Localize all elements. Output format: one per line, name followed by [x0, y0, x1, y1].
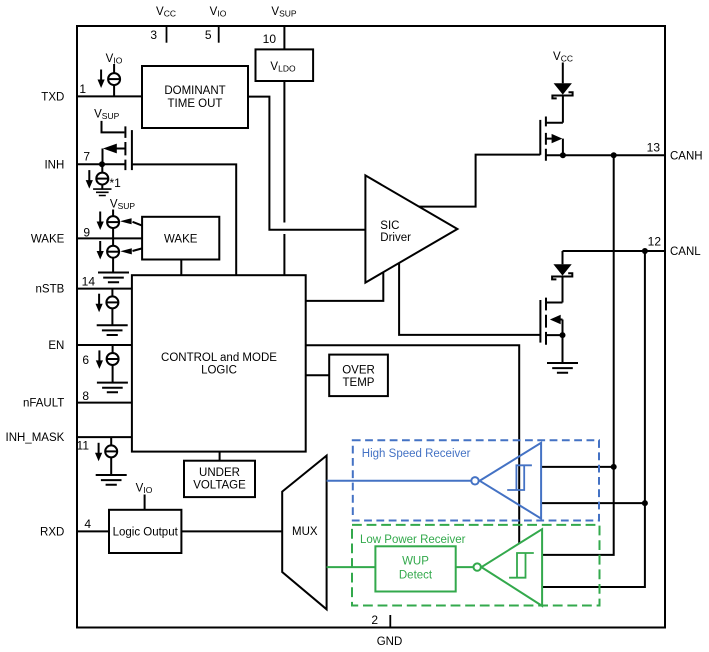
svg-text:EN: EN: [48, 340, 64, 352]
svg-text:VLDO: VLDO: [270, 61, 296, 74]
svg-text:4: 4: [84, 517, 91, 531]
svg-text:MUX: MUX: [292, 526, 318, 538]
svg-text:12: 12: [648, 235, 662, 249]
svg-text:INH: INH: [44, 159, 64, 171]
svg-text:VCC: VCC: [156, 6, 176, 19]
svg-text:8: 8: [82, 389, 89, 403]
svg-text:WAKE: WAKE: [31, 233, 65, 245]
svg-text:nFAULT: nFAULT: [23, 398, 64, 410]
svg-text:Detect: Detect: [399, 569, 433, 581]
svg-text:10: 10: [263, 32, 277, 46]
svg-text:WAKE: WAKE: [164, 234, 198, 246]
svg-text:UNDER: UNDER: [199, 467, 240, 479]
svg-text:RXD: RXD: [40, 526, 64, 538]
svg-text:DOMINANT: DOMINANT: [164, 85, 225, 97]
svg-text:VIO: VIO: [210, 6, 227, 19]
svg-text:High Speed Receiver: High Speed Receiver: [362, 448, 471, 460]
svg-text:VOLTAGE: VOLTAGE: [193, 479, 246, 491]
svg-text:INH_MASK: INH_MASK: [6, 432, 65, 444]
svg-text:VIO: VIO: [136, 483, 153, 496]
svg-text:CANL: CANL: [670, 246, 701, 258]
svg-text:VSUP: VSUP: [271, 6, 296, 19]
svg-text:9: 9: [83, 225, 90, 239]
svg-text:WUP: WUP: [402, 555, 429, 567]
svg-text:TEMP: TEMP: [343, 377, 375, 389]
svg-text:7: 7: [83, 150, 90, 164]
svg-text:GND: GND: [377, 636, 403, 648]
svg-text:VSUP: VSUP: [94, 108, 119, 121]
svg-text:1: 1: [79, 82, 86, 96]
svg-text:CANH: CANH: [670, 150, 703, 162]
svg-text:6: 6: [82, 353, 89, 367]
svg-text:VIO: VIO: [106, 53, 123, 66]
svg-text:Driver: Driver: [380, 232, 411, 244]
svg-text:VSUP: VSUP: [110, 199, 135, 212]
svg-text:nSTB: nSTB: [36, 283, 65, 295]
svg-text:14: 14: [82, 275, 96, 289]
svg-text:LOGIC: LOGIC: [201, 364, 237, 376]
svg-text:Low Power Receiver: Low Power Receiver: [360, 534, 466, 546]
svg-text:13: 13: [647, 141, 661, 155]
svg-text:11: 11: [77, 439, 90, 453]
svg-text:2: 2: [371, 613, 378, 627]
svg-text:TIME OUT: TIME OUT: [168, 98, 223, 110]
svg-text:*1: *1: [110, 176, 122, 190]
svg-text:3: 3: [150, 28, 157, 42]
svg-text:CONTROL and MODE: CONTROL and MODE: [161, 352, 277, 364]
svg-text:VCC: VCC: [553, 51, 573, 64]
svg-text:Logic Output: Logic Output: [113, 526, 179, 538]
svg-text:5: 5: [205, 28, 212, 42]
svg-text:OVER: OVER: [342, 365, 375, 377]
svg-text:SIC: SIC: [380, 220, 399, 232]
svg-text:TXD: TXD: [41, 91, 64, 103]
